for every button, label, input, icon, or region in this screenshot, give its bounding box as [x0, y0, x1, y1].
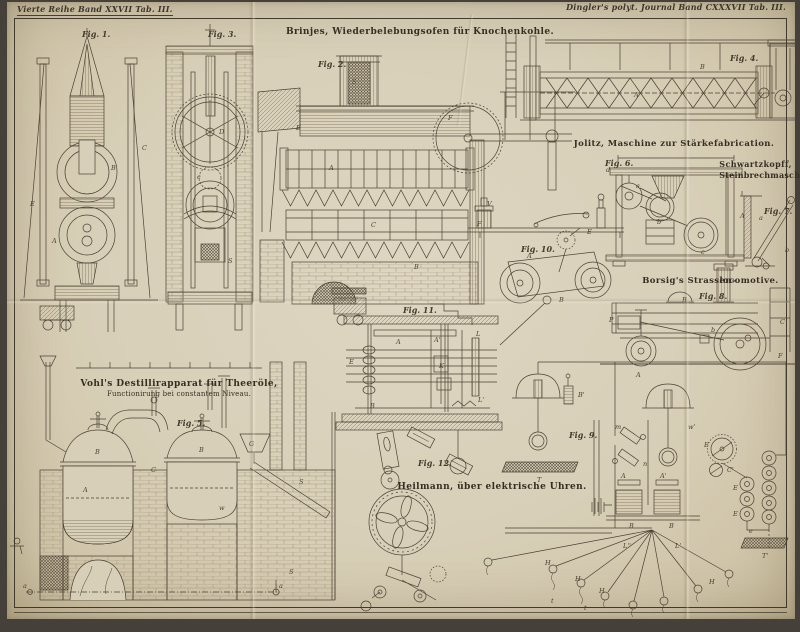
caption-borsig-2: locomotive. — [719, 276, 778, 286]
fig-label-3: Fig. 3. — [208, 29, 236, 39]
header-series-title: Vierte Reihe Band XXVII Tab. III. — [17, 4, 173, 16]
caption-vohl: Vohl's Destillirapparat für Theeröle, Fu… — [80, 379, 277, 398]
fig-label-10: Fig. 10. — [521, 244, 555, 254]
fig-label-6: Fig. 6. — [605, 158, 633, 168]
caption-brinjes: Brinjes, Wiederbelebungsofen für Knochen… — [286, 27, 554, 37]
caption-heilmann: Heilmann, über elektrische Uhren. — [397, 482, 586, 492]
caption-vohl-line2: Functionirung bei constantem Niveau. — [80, 390, 277, 398]
scanned-plate: ABECDScABCEFSABabcdAabPBCAbVABEFAA'BKLL'… — [0, 0, 800, 632]
caption-schwartzkopff: Schwartzkopff, Steinbrechmaschine — [719, 159, 800, 180]
caption-jolitz: Jolitz, Maschine zur Stärkefabrication. — [574, 139, 775, 149]
fig-label-1: Fig. 1. — [82, 29, 110, 39]
caption-schwartzkopff-line2: Steinbrechmaschine — [719, 170, 800, 180]
fig-label-4: Fig. 4. — [730, 53, 758, 63]
fig-label-8: Fig. 8. — [699, 291, 727, 301]
fig-label-12: Fig. 12. — [418, 458, 452, 468]
fig-label-11: Fig. 11. — [403, 305, 437, 315]
caption-schwartzkopff-line1: Schwartzkopff, — [719, 159, 792, 169]
plate-border-outer-line — [14, 612, 787, 613]
caption-vohl-line1: Vohl's Destillirapparat für Theeröle, — [80, 379, 277, 389]
fig-label-2: Fig. 2. — [318, 59, 346, 69]
fig-label-5: Fig. 5. — [177, 418, 205, 428]
fig-label-9: Fig. 9. — [569, 430, 597, 440]
fig-label-7: Fig. 7. — [764, 206, 792, 216]
header-journal-title: Dingler's polyt. Journal Band CXXXVII Ta… — [566, 2, 786, 12]
plate-border-frame — [14, 18, 787, 608]
